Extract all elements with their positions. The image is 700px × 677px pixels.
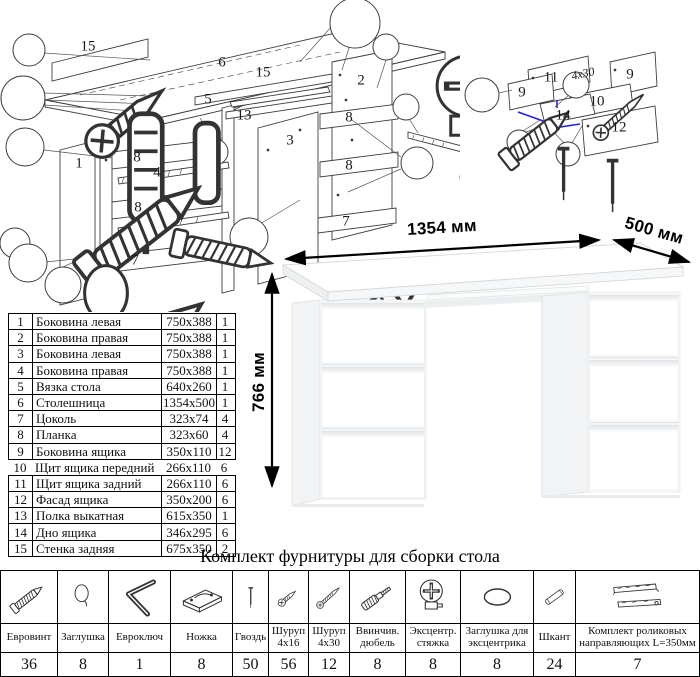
parts-table-row: 12Фасад ящика350x2006: [9, 491, 235, 507]
hardware-item: Ножка8: [171, 571, 233, 676]
hardware-item: Комплект роликовых направляющих L=350мм7: [576, 571, 699, 676]
hardware-item-name: Шуруп 4x16: [269, 624, 308, 653]
hardware-item-qty: 7: [576, 653, 699, 676]
desk-render: [250, 215, 700, 545]
part-qty: 1: [217, 314, 233, 329]
part-number-label: 15: [81, 39, 96, 56]
part-size: 346x295: [162, 524, 217, 539]
parts-table-row: 2Боковина правая750x3881: [9, 329, 235, 345]
parts-table: 1Боковина левая750x38812Боковина правая7…: [8, 313, 236, 557]
part-number-label: 6: [218, 55, 226, 72]
hardware-item-name: Шкант: [534, 624, 575, 653]
part-size: 615x350: [162, 508, 217, 523]
drawer-exploded-drawing: [440, 30, 700, 220]
hardware-item-name: Комплект роликовых направляющих L=350мм: [576, 624, 699, 653]
parts-table-row: 5Вязка стола640x2601: [9, 378, 235, 394]
drawer-exploded-diagram: 11991014124x30: [440, 30, 700, 220]
cap-icon: [58, 571, 108, 624]
parts-table-row: 6Столешница1354x5001: [9, 394, 235, 410]
hardware-kit-section: Комплект фурнитуры для сборки стола Евро…: [0, 546, 700, 677]
cam-cap-icon: [461, 571, 533, 624]
part-num: 10: [8, 460, 32, 475]
hex-key-icon: [109, 571, 170, 624]
hardware-item-name: Гвоздь: [233, 624, 268, 653]
part-name: Столешница: [33, 395, 162, 410]
height-dimension-label: 766 мм: [249, 352, 269, 412]
parts-table-row: 13Полка выкатная615x3501: [9, 507, 235, 523]
part-size: 266x110: [162, 476, 217, 491]
hardware-item: Евроключ1: [109, 571, 171, 676]
part-size: 266x110: [161, 460, 216, 475]
part-number-label: 13: [237, 108, 252, 125]
hardware-item: Шкант24: [534, 571, 576, 676]
part-number-label: 11: [544, 70, 558, 87]
parts-table-row: 9Боковина ящика350x11012: [9, 443, 235, 459]
hardware-item-qty: 8: [58, 653, 108, 676]
hardware-item-name: Евроключ: [109, 624, 170, 653]
part-num: 7: [9, 411, 33, 426]
part-num: 6: [9, 395, 33, 410]
part-number-label: 2: [357, 73, 365, 90]
part-number-label: 9: [626, 67, 634, 84]
part-size: 750x388: [162, 330, 217, 345]
part-num: 1: [9, 314, 33, 329]
part-number-label: 9: [518, 85, 526, 102]
part-size: 350x110: [162, 444, 217, 459]
part-num: 14: [9, 524, 33, 539]
part-num: 2: [9, 330, 33, 345]
part-num: 12: [9, 492, 33, 507]
part-name: Боковина правая: [33, 330, 162, 345]
screw-long-icon: [309, 571, 349, 624]
part-number-label: 5: [204, 92, 212, 109]
part-size: 640x260: [162, 379, 217, 394]
part-name: Щит ящика задний: [33, 476, 162, 491]
part-name: Дно ящика: [33, 524, 162, 539]
hardware-item: Эксцентр. стяжка8: [406, 571, 461, 676]
part-name: Цоколь: [33, 411, 162, 426]
part-qty: 1: [217, 395, 233, 410]
part-name: Боковина левая: [33, 314, 162, 329]
hardware-item-qty: 8: [171, 653, 232, 676]
parts-table-row: 11Щит ящика задний266x1106: [9, 476, 235, 491]
parts-table-row: 4Боковина правая750x3881: [9, 362, 235, 378]
part-size: 323x60: [162, 427, 217, 442]
part-size: 350x200: [162, 492, 217, 507]
part-name: Боковина ящика: [33, 444, 162, 459]
hardware-item-qty: 56: [269, 653, 308, 676]
part-qty: 12: [217, 444, 233, 459]
part-name: Вязка стола: [33, 379, 162, 394]
hardware-item-qty: 24: [534, 653, 575, 676]
cam-lock-icon: [406, 571, 460, 624]
part-qty: 1: [217, 330, 233, 345]
parts-table-row: 10Щит ящика передний266x1106: [8, 460, 236, 475]
part-number-label: 10: [590, 94, 605, 111]
part-size: 323x74: [162, 411, 217, 426]
nail-icon: [233, 571, 268, 624]
parts-table-row: 14Дно ящика346x2956: [9, 523, 235, 539]
hardware-item-name: Шуруп 4x30: [309, 624, 349, 653]
part-size: 750x388: [162, 314, 217, 329]
part-num: 8: [9, 427, 33, 442]
width-dimension-label: 1354 мм: [407, 216, 478, 240]
part-number-label: 14: [556, 108, 571, 125]
roller-slides-icon: [576, 571, 699, 624]
part-num: 4: [9, 363, 33, 378]
part-qty: 1: [217, 346, 233, 361]
hardware-item: Евровинт36: [1, 571, 58, 676]
hardware-item-name: Заглушка: [58, 624, 108, 653]
hardware-item: Ввинчив. дюбель8: [350, 571, 406, 676]
hardware-item: Шуруп 4x1656: [269, 571, 309, 676]
part-number-label: 12: [612, 120, 627, 137]
part-name: Фасад ящика: [33, 492, 162, 507]
part-number-label: 8: [133, 150, 141, 167]
part-qty: 4: [217, 411, 233, 426]
hardware-table: Евровинт36Заглушка8Евроключ1Ножка8Гвоздь…: [0, 570, 700, 677]
part-name: Полка выкатная: [33, 508, 162, 523]
hardware-item-name: Ножка: [171, 624, 232, 653]
part-size: 1354x500: [162, 395, 217, 410]
hardware-item-qty: 50: [233, 653, 268, 676]
part-number-label: 8: [345, 110, 353, 127]
part-num: 3: [9, 346, 33, 361]
hardware-item-name: Заглушка для эксцентрика: [461, 624, 533, 653]
part-name: Боковина правая: [33, 363, 162, 378]
part-qty: 4: [217, 427, 233, 442]
hardware-item-name: Евровинт: [1, 624, 57, 653]
part-qty: 1: [217, 379, 233, 394]
part-qty: 6: [217, 476, 233, 491]
hardware-kit-title: Комплект фурнитуры для сборки стола: [0, 546, 700, 567]
part-qty: 6: [217, 524, 233, 539]
hardware-item-qty: 36: [1, 653, 57, 676]
part-name: Боковина левая: [33, 346, 162, 361]
hardware-item: Заглушка8: [58, 571, 109, 676]
part-qty: 6: [217, 492, 233, 507]
hardware-item-name: Эксцентр. стяжка: [406, 624, 460, 653]
parts-table-row: 1Боковина левая750x3881: [9, 314, 235, 329]
hardware-item: Шуруп 4x3012: [309, 571, 350, 676]
foot-glide-icon: [171, 571, 232, 624]
parts-table-row: 8Планка323x604: [9, 426, 235, 442]
confirmat-screw-icon: [1, 571, 57, 624]
hardware-item-qty: 12: [309, 653, 349, 676]
parts-table-row: 7Цоколь323x744: [9, 410, 235, 426]
part-name: Планка: [33, 427, 162, 442]
part-number-label: 8: [345, 158, 353, 175]
part-qty: 1: [217, 363, 233, 378]
hardware-item-qty: 8: [461, 653, 533, 676]
wood-dowel-icon: [534, 571, 575, 624]
screw-in-dowel-icon: [350, 571, 405, 624]
part-num: 5: [9, 379, 33, 394]
part-size: 750x388: [162, 346, 217, 361]
hardware-item-qty: 8: [350, 653, 405, 676]
hardware-item: Заглушка для эксцентрика8: [461, 571, 534, 676]
part-number-label: 8: [134, 200, 142, 217]
screw-small-icon: [269, 571, 308, 624]
desk-dimension-figure: 1354 мм 500 мм 766 мм: [250, 215, 700, 545]
hardware-item-name: Ввинчив. дюбель: [350, 624, 405, 653]
part-qty: 6: [216, 460, 232, 475]
part-number-label: 7: [131, 253, 139, 270]
part-num: 13: [9, 508, 33, 523]
part-number-label: 1: [75, 156, 83, 173]
part-num: 11: [9, 476, 33, 491]
part-qty: 1: [217, 508, 233, 523]
assembly-instruction-sheet: 156155132318487887: [0, 0, 700, 677]
hardware-item-qty: 1: [109, 653, 170, 676]
part-num: 9: [9, 444, 33, 459]
part-number-label: 3: [286, 133, 294, 150]
part-size: 750x388: [162, 363, 217, 378]
hardware-item: Гвоздь50: [233, 571, 269, 676]
hardware-item-qty: 8: [406, 653, 460, 676]
parts-table-row: 3Боковина левая750x3881: [9, 345, 235, 361]
part-number-label: 4: [153, 165, 161, 182]
part-name: Щит ящика передний: [32, 460, 161, 475]
part-number-label: 15: [256, 65, 271, 82]
